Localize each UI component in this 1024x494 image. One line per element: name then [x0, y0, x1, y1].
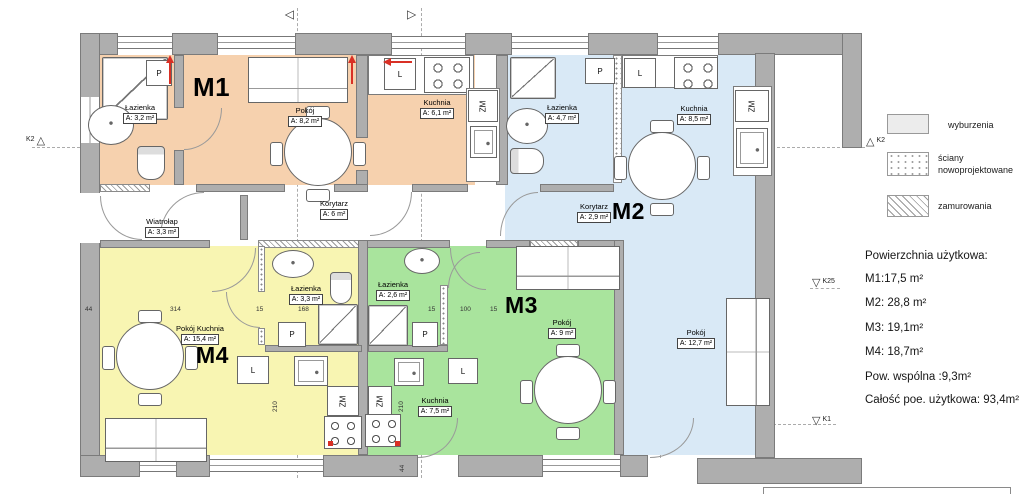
title-block-edge: [763, 487, 1011, 494]
fridge-zm-m4: ZM: [327, 386, 359, 416]
table-round: [534, 356, 602, 424]
bricked-wall-m4-bath-north: [258, 240, 362, 248]
summary-line-m1: M1:17,5 m²: [865, 273, 923, 285]
wall-top-pier: [465, 33, 512, 55]
entrance-arrow-m1k: [390, 61, 412, 63]
zm-label: ZM: [479, 100, 488, 112]
cabinet-l-m3: L: [448, 358, 478, 384]
triangle-down-icon: ▽: [812, 416, 820, 426]
marker-k1-label: K1: [822, 416, 831, 423]
bricked-wall-hall-north: [100, 184, 150, 192]
shower-m3: [368, 305, 408, 346]
dimension: 44: [85, 306, 92, 313]
chair: [603, 380, 616, 404]
fridge-zm-m1: ZM: [468, 90, 498, 122]
room-label-m1-bath: ŁazienkaA: 3,2 m²: [110, 103, 170, 124]
marker-k2-right-label: K2: [876, 137, 885, 144]
legend-swatch-new-walls: [887, 152, 929, 176]
cabinet-p-m4: P: [278, 322, 306, 347]
cabinet-p-m2: P: [585, 58, 615, 84]
sink-m2-kitchen: [736, 128, 768, 168]
chair: [697, 156, 710, 180]
couch-m4: [105, 418, 207, 462]
wall-bottom-pier: [620, 455, 648, 477]
wall-hall-north: [412, 184, 468, 192]
new-wall-m4-bath-west-lower: [258, 328, 265, 345]
room-label-m3-kitchen: KuchniaA: 7,5 m²: [403, 396, 467, 417]
entrance-arrow-m1: [169, 62, 171, 84]
wall-vestibule-east: [240, 195, 248, 240]
sink-m1-kitchen: [470, 126, 497, 158]
marker-k25-label: K25: [822, 278, 834, 285]
window-bottom: [210, 459, 323, 472]
summary-line-total: Całość poe. użytkowa: 93,4m²: [865, 394, 1019, 406]
section-marker-icon: △: [282, 10, 296, 19]
marker-k2-left: K2 △: [26, 136, 45, 146]
sink-m4-bath: [272, 250, 314, 278]
chair: [138, 393, 162, 406]
fridge-zm-m2: ZM: [735, 90, 769, 122]
chair: [353, 142, 366, 166]
room-label-hall: KorytarzA: 6 m²: [306, 199, 362, 220]
stove-m2: [674, 57, 718, 89]
red-dot-m4: [328, 441, 333, 446]
couch-m2: [726, 298, 770, 406]
sink-m3-kitchen: [394, 358, 424, 386]
triangle-up-icon: △: [37, 136, 45, 146]
apartment-label-m2: M2: [612, 198, 645, 225]
dimension: 15: [256, 306, 263, 313]
wall-hall-south: [100, 240, 210, 248]
sink-m4-kitchen: [294, 356, 328, 386]
room-label-m2-room: PokójA: 12,7 m²: [661, 328, 731, 349]
legend-swatch-bricked: [887, 195, 929, 217]
dining-table-m3: [518, 342, 618, 442]
fridge-zm-m3: ZM: [368, 386, 392, 416]
stove-m1: [424, 57, 470, 93]
summary-line-m3: M3: 19,1m²: [865, 322, 923, 334]
entrance-arrow-m1b: [351, 62, 353, 84]
summary-title: Powierzchnia użytkowa:: [865, 250, 988, 262]
chair: [556, 427, 580, 440]
red-dot-m3: [395, 441, 400, 446]
shower-m4: [318, 304, 358, 345]
window-bottom: [543, 459, 620, 472]
dimension: 210: [272, 401, 279, 412]
new-wall-m3-bath-east: [440, 285, 448, 345]
room-label-m3-room: PokójA: 9 m²: [534, 318, 590, 339]
apartment-label-m4: M4: [196, 342, 229, 369]
chair: [520, 380, 533, 404]
couch-m1: [248, 57, 348, 103]
apartment-label-m1: M1: [193, 72, 230, 103]
entrance-arrow-head-m1: [166, 55, 174, 63]
room-label-vestibule: WiatrołapA: 3,3 m²: [126, 217, 198, 238]
door-arc-m1-kitchen: [370, 192, 412, 236]
toilet-m2: [510, 148, 544, 174]
legend-label-bricked: zamurowania: [938, 201, 992, 213]
section-marker-icon: △: [406, 10, 420, 19]
marker-k2-right: △ K2: [866, 137, 885, 147]
cabinet-p-m3: P: [412, 322, 438, 347]
cabinet-p-label: P: [156, 69, 161, 78]
couch-m3: [516, 246, 620, 290]
toilet-m1: [137, 146, 165, 180]
triangle-up-icon: △: [866, 137, 874, 147]
chair: [614, 156, 627, 180]
cabinet-l-label: L: [461, 367, 465, 376]
wall-bottom-slab: [697, 458, 862, 484]
room-label-m3-bath: ŁazienkaA: 2,6 m²: [365, 280, 421, 301]
sink-m3-bath: [404, 248, 440, 274]
dimension: 210: [398, 401, 405, 412]
wall-m1-bath-room-lower: [174, 150, 184, 185]
shower-m2: [510, 57, 556, 99]
dimension: 15: [490, 306, 497, 313]
apartment-label-m3: M3: [505, 292, 538, 319]
wall-top-pier: [718, 33, 862, 55]
room-label-m1-kitchen: KuchniaA: 6,1 m²: [407, 98, 467, 119]
cabinet-l-label: L: [251, 366, 255, 375]
wall-m1-bath-room-upper: [174, 55, 184, 108]
cabinet-l-label: L: [638, 69, 642, 78]
dimension: 314: [170, 306, 181, 313]
entrance-arrow-head-m1k: [383, 58, 391, 66]
room-label-m4-bath: ŁazienkaA: 3,3 m²: [276, 284, 336, 305]
wall-top-pier: [295, 33, 392, 55]
cabinet-l-m4: L: [237, 356, 269, 384]
wall-m3-bath-north: [362, 240, 450, 248]
summary-line-m4: M4: 18,7m²: [865, 346, 923, 358]
chair: [650, 203, 674, 216]
chair: [102, 346, 115, 370]
zm-label: ZM: [339, 395, 348, 407]
dimension: 44: [399, 465, 406, 472]
cabinet-p-label: P: [597, 67, 602, 76]
dimension: 168: [298, 306, 309, 313]
cabinet-p-label: P: [289, 330, 294, 339]
cabinet-l-label: L: [398, 70, 402, 79]
marker-k2-left-label: K2: [26, 136, 35, 143]
chair: [270, 142, 283, 166]
wall-top-pier: [588, 33, 658, 55]
dimension: 100: [460, 306, 471, 313]
table-round: [628, 132, 696, 200]
room-label-m1-room: PokójA: 8,2 m²: [270, 106, 340, 127]
legend-label-new-walls: ściany nowoprojektowane: [938, 153, 1016, 176]
summary-line-common: Pow. wspólna :9,3m²: [865, 371, 971, 383]
wall-bottom-pier: [458, 455, 543, 477]
cabinet-p-label: P: [422, 330, 427, 339]
dimension: 15: [428, 306, 435, 313]
marker-k25: ▽ K25: [812, 278, 835, 288]
legend-label-demolition: wyburzenia: [948, 120, 994, 132]
dining-table-m4: [100, 308, 200, 408]
cabinet-l-m2: L: [624, 58, 656, 88]
wall-m2-bath-south: [540, 184, 614, 192]
room-label-m2-kitchen: KuchniaA: 8,5 m²: [662, 104, 726, 125]
table-round: [284, 118, 352, 186]
floor-plan-canvas: P L ZM P L ZM P L ZM: [0, 0, 1024, 494]
legend-swatch-demolition: [887, 114, 929, 134]
zm-label: ZM: [376, 395, 385, 407]
entrance-arrow-head-m1b: [348, 55, 356, 63]
room-label-m2-bath: ŁazienkaA: 4,7 m²: [527, 103, 597, 124]
summary-line-m2: M2: 28,8 m²: [865, 297, 926, 309]
entry-door-gap-left: [80, 193, 100, 243]
triangle-down-icon: ▽: [812, 278, 820, 288]
wall-right-stub: [842, 33, 862, 148]
wall-top-pier: [172, 33, 218, 55]
marker-k1: ▽ K1: [812, 416, 831, 426]
new-wall-m4-bath-west-upper: [258, 246, 265, 292]
zm-label: ZM: [748, 100, 757, 112]
